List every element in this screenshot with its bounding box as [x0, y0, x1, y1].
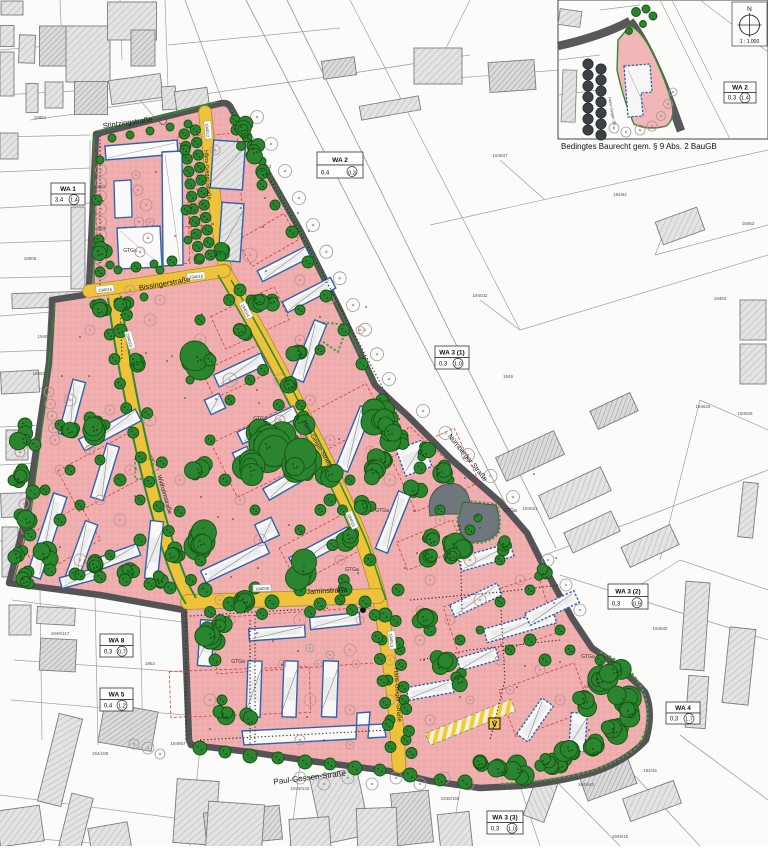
svg-text:0,3: 0,3: [348, 171, 356, 177]
svg-text:WA 1: WA 1: [60, 186, 76, 193]
svg-text:194038: 194038: [255, 586, 270, 592]
svg-text:194625: 194625: [737, 411, 753, 416]
svg-text:WA 5: WA 5: [109, 692, 125, 699]
svg-text:WA 3 (3): WA 3 (3): [492, 815, 517, 822]
svg-text:WA 2: WA 2: [732, 85, 748, 92]
svg-text:1,7: 1,7: [685, 717, 693, 723]
svg-text:GTGa: GTGa: [503, 508, 517, 514]
svg-text:194637: 194637: [492, 153, 508, 158]
svg-text:0,7: 0,7: [118, 650, 126, 656]
svg-text:16861: 16861: [34, 115, 47, 120]
svg-text:1 : 1.000: 1 : 1.000: [740, 39, 760, 45]
svg-text:0,4: 0,4: [104, 704, 113, 710]
svg-text:0,3: 0,3: [728, 96, 737, 102]
svg-text:1949/155: 1949/155: [441, 796, 460, 801]
svg-text:0,3: 0,3: [104, 650, 113, 656]
svg-text:194038: 194038: [32, 371, 48, 376]
svg-text:194031: 194031: [522, 506, 538, 511]
svg-text:194625: 194625: [695, 404, 711, 409]
svg-text:0,9: 0,9: [633, 602, 641, 608]
svg-text:194041: 194041: [22, 436, 38, 441]
svg-text:1949/101: 1949/101: [584, 684, 603, 689]
svg-text:1949/15: 1949/15: [612, 834, 629, 839]
svg-text:19463: 19463: [714, 296, 727, 301]
svg-text:3,4: 3,4: [55, 198, 64, 204]
svg-text:1,4: 1,4: [741, 96, 749, 102]
svg-text:Bedingtes Baurecht gem. § 9 Ab: Bedingtes Baurecht gem. § 9 Abs. 2 BauGB: [561, 142, 717, 151]
svg-text:WA 4: WA 4: [675, 705, 691, 712]
svg-text:194632: 194632: [652, 626, 668, 631]
svg-text:1952: 1952: [145, 661, 156, 666]
svg-text:0,3: 0,3: [670, 717, 679, 723]
svg-text:GTGa: GTGa: [375, 508, 389, 514]
svg-text:1949/117: 1949/117: [51, 631, 70, 636]
svg-text:0,3: 0,3: [491, 827, 500, 833]
svg-text:194/45: 194/45: [643, 768, 657, 773]
svg-text:194/105: 194/105: [92, 751, 109, 756]
svg-text:19505: 19505: [24, 256, 37, 261]
svg-text:194032: 194032: [472, 293, 488, 298]
svg-text:194/62: 194/62: [613, 192, 627, 197]
svg-text:GTGa: GTGa: [345, 567, 359, 573]
svg-text:GTGa: GTGa: [581, 654, 595, 660]
svg-text:N: N: [747, 6, 752, 13]
svg-text:19463: 19463: [742, 221, 755, 226]
svg-text:WA 2: WA 2: [332, 157, 348, 164]
svg-text:WA 3 (1): WA 3 (1): [439, 350, 464, 357]
svg-text:19508: 19508: [94, 226, 107, 231]
svg-text:19463: 19463: [259, 164, 272, 169]
svg-text:WA 3 (2): WA 3 (2): [615, 589, 640, 596]
svg-text:WA 8: WA 8: [109, 638, 125, 645]
svg-text:1949/43: 1949/43: [578, 782, 595, 787]
svg-text:194957: 194957: [170, 741, 186, 746]
svg-text:0,4: 0,4: [321, 171, 330, 177]
svg-text:1,2: 1,2: [118, 704, 126, 710]
svg-text:0,3: 0,3: [612, 602, 621, 608]
svg-text:194047: 194047: [20, 526, 36, 531]
svg-text:1,4: 1,4: [70, 198, 78, 204]
svg-text:1,0: 1,0: [454, 362, 462, 368]
svg-text:19502: 19502: [94, 184, 107, 189]
svg-text:1,0: 1,0: [508, 827, 516, 833]
svg-text:1949: 1949: [503, 374, 514, 379]
svg-text:1949/143: 1949/143: [291, 786, 310, 791]
svg-text:0,3: 0,3: [439, 362, 448, 368]
svg-text:194031: 194031: [37, 334, 53, 339]
svg-text:GTGa: GTGa: [231, 659, 245, 665]
